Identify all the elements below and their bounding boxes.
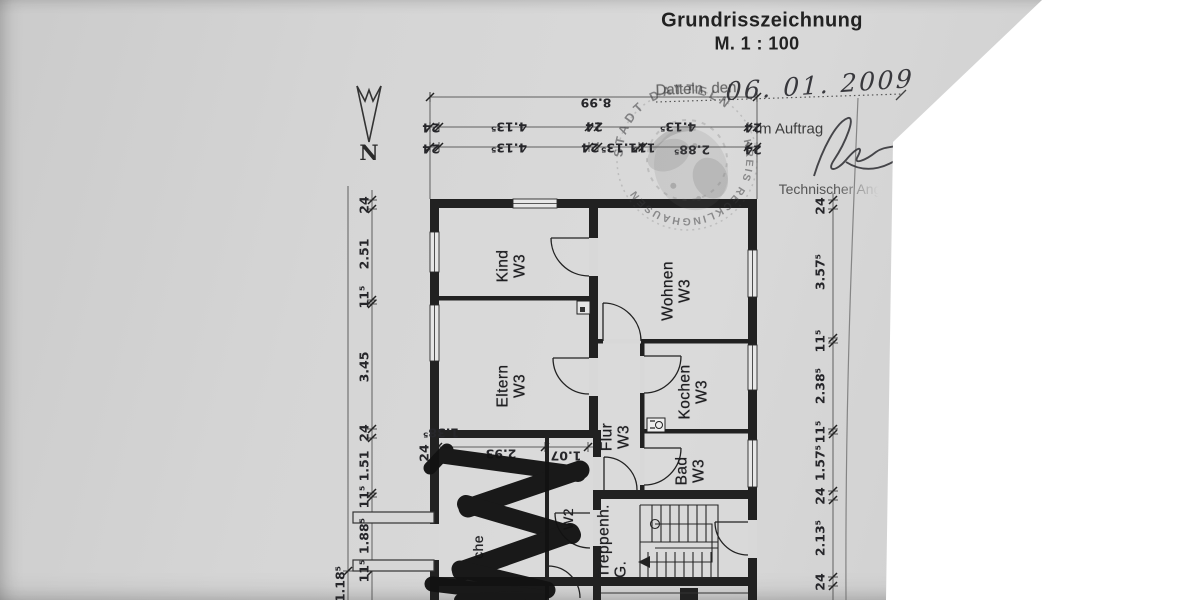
dim-label: 11⁵ [357, 486, 372, 509]
dim-label: 1.51 [357, 451, 372, 482]
room-label-redacted-fragment: che [471, 535, 487, 559]
dim-label: 2.93 [486, 447, 517, 462]
dim-label: 4.13⁵ [491, 120, 527, 135]
handwritten-date: 06. 01. 2009 [725, 64, 915, 106]
dim-label: 11⁵ [813, 421, 828, 444]
room-label-flur: Flur W3 [599, 423, 634, 451]
dim-label: 11⁵ [813, 330, 828, 353]
room-unit-w2: W2 [561, 508, 577, 530]
room-name: Bad [674, 457, 691, 486]
dim-label: 11⁵ [633, 141, 656, 156]
room-unit: W3 [677, 279, 694, 303]
dim-label: 24 [422, 142, 439, 157]
dim-label: 3.57⁵ [813, 254, 828, 290]
dim-label: 1.38⁵ [423, 426, 459, 441]
scale-label: M. 1 : 100 [714, 34, 799, 55]
dim-label: 24 [813, 487, 828, 504]
room-unit: W3 [512, 254, 529, 278]
room-name: Treppenh. [596, 504, 613, 578]
room-name: Wohnen [660, 261, 677, 321]
dim-label: 1.18⁵ [333, 566, 348, 600]
dim-label: 4.13⁵ [491, 141, 527, 156]
dim-label: 2.51 [357, 239, 372, 270]
role-label: Technischer Ang [779, 181, 882, 197]
dim-label: 2.38⁵ [813, 368, 828, 404]
dim-label: 24 [813, 573, 828, 590]
room-label-bad: Bad W3 [674, 457, 709, 486]
dim-label: 1.07 [551, 449, 582, 464]
dim-label: 24 [744, 121, 761, 136]
dim-label: 11⁵ [357, 560, 372, 583]
room-name: Flur [599, 423, 616, 451]
dim-label: 3.45 [357, 352, 372, 383]
room-name: che [471, 535, 487, 559]
room-name: Kochen [677, 365, 694, 420]
dim-label: 11⁵ [357, 286, 372, 309]
dim-label: 2.88⁵ [674, 143, 710, 158]
room-label-kind: Kind W3 [495, 250, 530, 283]
page-title: Grundrisszeichnung [661, 10, 863, 33]
room-label-treppenhaus: Treppenh. G. [596, 504, 631, 578]
room-label-kochen: Kochen W3 [677, 365, 712, 420]
room-label-wohnen: Wohnen W3 [660, 261, 695, 321]
dim-label: 1.88⁵ [357, 518, 372, 554]
dim-label: 24 [744, 143, 761, 158]
dim-label: 4.13⁵ [660, 120, 696, 135]
room-unit: W2 [561, 508, 577, 530]
dim-label: 24 [357, 424, 372, 441]
date-label: Datteln, den [655, 79, 736, 99]
room-unit: W3 [616, 425, 633, 449]
paper-sheet: N Grundrisszeichnung M. 1 : 100 Datteln,… [0, 0, 1200, 600]
dim-label: 1.57⁵ [813, 445, 828, 481]
dim-label: 24 [813, 197, 828, 214]
dim-top-overall: 8.99 [581, 96, 612, 111]
dim-label: 24 [585, 120, 602, 135]
scanned-floorplan-page: N Grundrisszeichnung M. 1 : 100 Datteln,… [0, 0, 1200, 600]
room-name: Kind [495, 250, 512, 283]
order-label: Im Auftrag [755, 121, 823, 138]
room-unit: W3 [694, 380, 711, 404]
room-name: Eltern [495, 365, 512, 408]
label-layer: Grundrisszeichnung M. 1 : 100 Datteln, d… [0, 0, 1200, 600]
room-unit: W3 [691, 459, 708, 483]
room-label-eltern: Eltern W3 [495, 365, 530, 408]
dim-label: 24 [581, 141, 598, 156]
dim-label: 24 [417, 444, 432, 461]
room-unit: W3 [512, 374, 529, 398]
dim-label: 24 [422, 121, 439, 136]
dim-label: 2.13⁵ [813, 520, 828, 556]
room-unit: G. [613, 561, 630, 578]
dim-label: 24 [357, 196, 372, 213]
